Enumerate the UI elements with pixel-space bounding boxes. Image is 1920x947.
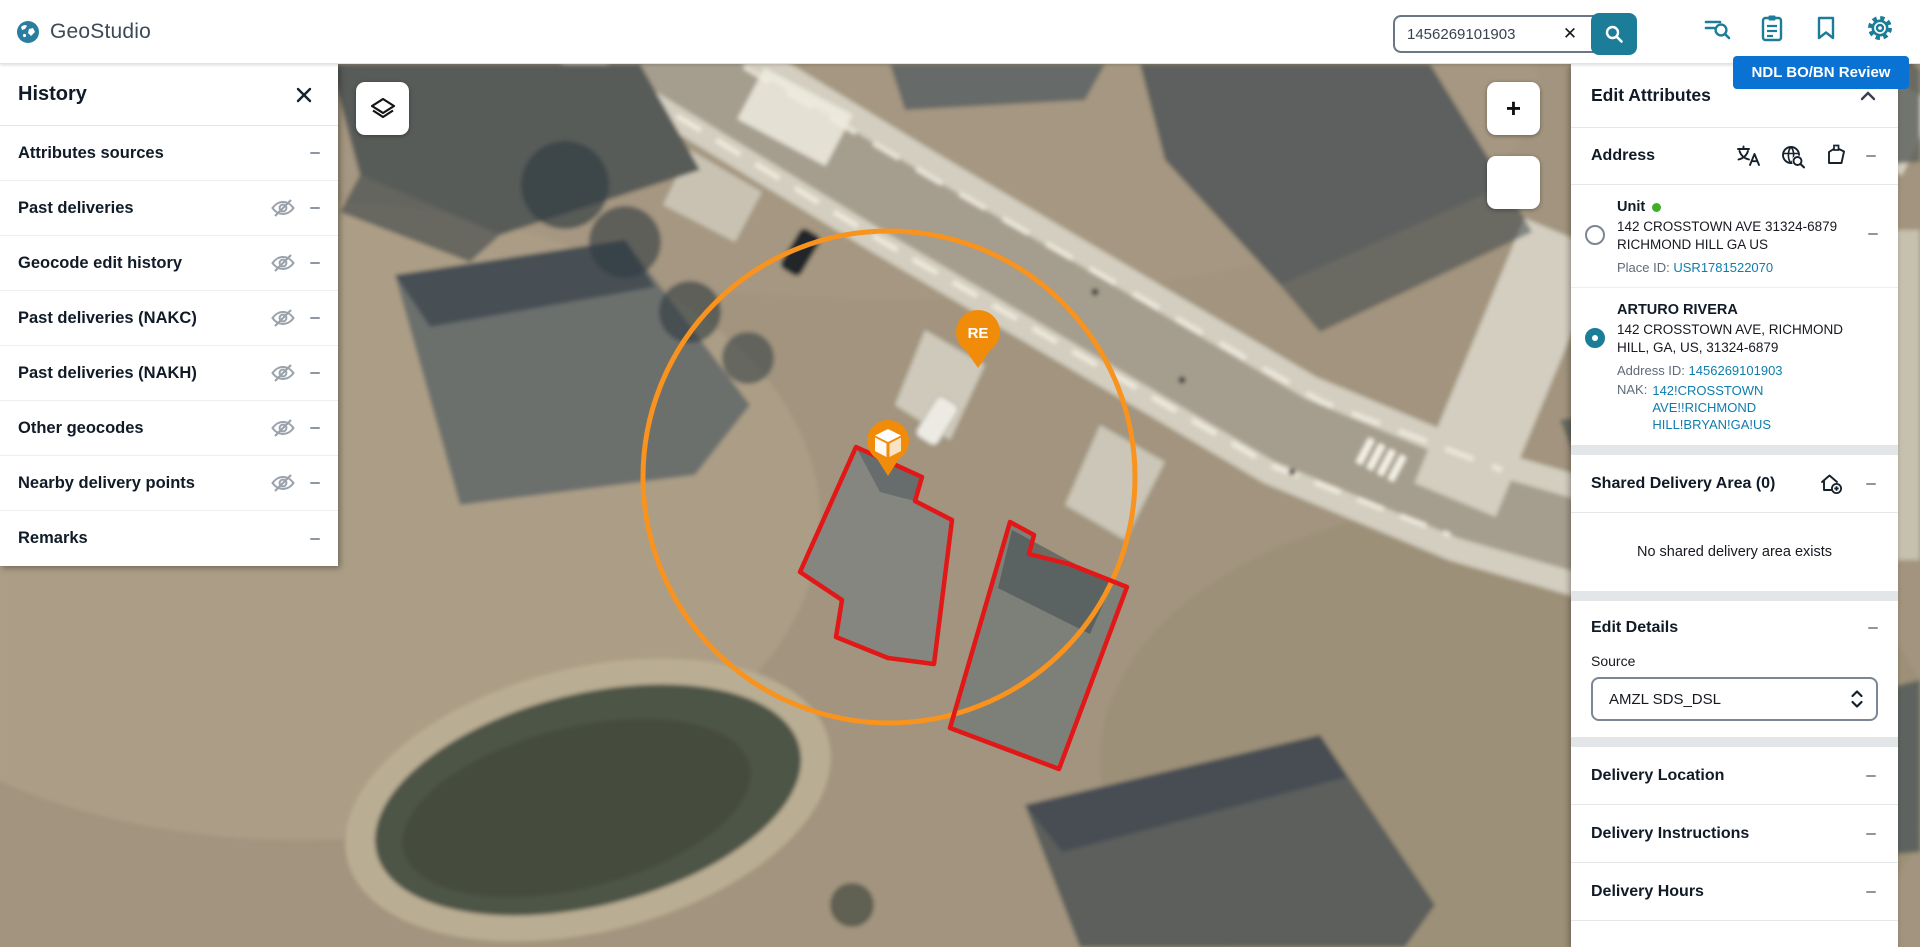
map-layers-button[interactable] bbox=[356, 82, 409, 135]
search-clear-button[interactable]: ✕ bbox=[1557, 21, 1583, 47]
tasks-button[interactable] bbox=[1754, 8, 1790, 48]
clipboard-icon bbox=[1760, 14, 1784, 42]
history-item-remarks[interactable]: Remarks bbox=[0, 511, 338, 566]
history-panel: History Attributes sources Past deliveri… bbox=[0, 64, 338, 566]
history-item-past-deliveries[interactable]: Past deliveries bbox=[0, 181, 338, 236]
header-search: ✕ bbox=[1393, 13, 1637, 55]
shared-delivery-empty-message: No shared delivery area exists bbox=[1571, 513, 1898, 591]
visibility-off-icon[interactable] bbox=[270, 196, 296, 220]
visibility-off-icon[interactable] bbox=[270, 471, 296, 495]
address-id-link[interactable]: 1456269101903 bbox=[1689, 363, 1783, 378]
parcel-boundary-icon[interactable] bbox=[1824, 144, 1848, 168]
edit-attributes-title: Edit Attributes bbox=[1591, 85, 1711, 106]
history-panel-title: History bbox=[18, 83, 87, 106]
visibility-off-icon[interactable] bbox=[270, 416, 296, 440]
address-section-title: Address bbox=[1591, 147, 1655, 165]
section-delivery-location[interactable]: Delivery Location bbox=[1571, 747, 1898, 805]
history-item-past-deliveries-nakh[interactable]: Past deliveries (NAKH) bbox=[0, 346, 338, 401]
section-delivery-hours[interactable]: Delivery Hours bbox=[1571, 863, 1898, 921]
unit-address-line2: RICHMOND HILL GA US bbox=[1617, 236, 1859, 254]
source-label: Source bbox=[1591, 653, 1878, 669]
status-dot-green bbox=[1652, 203, 1661, 212]
panel-scrollbar-track[interactable] bbox=[1571, 445, 1898, 455]
expand-toggle[interactable] bbox=[1866, 483, 1876, 485]
nak-label: NAK: bbox=[1617, 382, 1647, 433]
unit-address-line1: 142 CROSSTOWN AVE 31324-6879 bbox=[1617, 218, 1859, 236]
expand-toggle[interactable] bbox=[1866, 833, 1876, 835]
add-home-icon[interactable] bbox=[1818, 472, 1844, 496]
visibility-off-icon[interactable] bbox=[270, 306, 296, 330]
history-item-nearby-delivery-points[interactable]: Nearby delivery points bbox=[0, 456, 338, 511]
expand-toggle[interactable] bbox=[1868, 627, 1878, 629]
primary-name: ARTURO RIVERA bbox=[1617, 302, 1738, 318]
map-search-icon[interactable] bbox=[1780, 144, 1806, 169]
settings-button[interactable] bbox=[1862, 8, 1898, 48]
chevron-up-icon[interactable] bbox=[1860, 91, 1876, 101]
expand-toggle[interactable] bbox=[1866, 891, 1876, 893]
globe-logo-icon bbox=[16, 20, 40, 44]
history-item-past-deliveries-nakc[interactable]: Past deliveries (NAKC) bbox=[0, 291, 338, 346]
expand-toggle[interactable] bbox=[310, 152, 320, 154]
search-list-icon bbox=[1704, 15, 1732, 41]
section-delivery-instructions[interactable]: Delivery Instructions bbox=[1571, 805, 1898, 863]
zoom-in-button[interactable]: + bbox=[1487, 82, 1540, 135]
expand-toggle[interactable] bbox=[1866, 155, 1876, 157]
unit-radio[interactable] bbox=[1585, 225, 1605, 245]
bulk-search-button[interactable] bbox=[1700, 8, 1736, 48]
gear-icon bbox=[1865, 13, 1895, 43]
expand-toggle[interactable] bbox=[310, 538, 320, 540]
expand-toggle[interactable] bbox=[1868, 233, 1878, 235]
edit-attributes-panel: Edit Attributes Address bbox=[1571, 64, 1898, 947]
edit-details-title: Edit Details bbox=[1591, 619, 1678, 637]
search-icon bbox=[1604, 24, 1624, 44]
layers-icon bbox=[370, 97, 396, 121]
expand-toggle[interactable] bbox=[310, 207, 320, 209]
place-id-label: Place ID: bbox=[1617, 260, 1670, 275]
expand-toggle[interactable] bbox=[310, 372, 320, 374]
visibility-off-icon[interactable] bbox=[270, 361, 296, 385]
primary-address: 142 CROSSTOWN AVE, RICHMOND HILL, GA, US… bbox=[1617, 321, 1859, 357]
app-title: GeoStudio bbox=[50, 20, 151, 44]
source-selected-value: AMZL SDS_DSL bbox=[1609, 691, 1721, 708]
history-item-attributes-sources[interactable]: Attributes sources bbox=[0, 126, 338, 181]
expand-toggle[interactable] bbox=[1866, 775, 1876, 777]
expand-toggle[interactable] bbox=[310, 427, 320, 429]
bookmark-icon bbox=[1815, 15, 1837, 41]
app-header: GeoStudio ✕ bbox=[0, 0, 1920, 64]
address-candidate-unit[interactable]: Unit 142 CROSSTOWN AVE 31324-6879 RICHMO… bbox=[1571, 185, 1898, 287]
close-icon bbox=[296, 87, 312, 103]
shared-delivery-area-title: Shared Delivery Area (0) bbox=[1591, 475, 1775, 493]
history-item-geocode-edit-history[interactable]: Geocode edit history bbox=[0, 236, 338, 291]
search-button[interactable] bbox=[1591, 13, 1637, 55]
visibility-off-icon[interactable] bbox=[270, 251, 296, 275]
zoom-out-button[interactable] bbox=[1487, 156, 1540, 209]
expand-toggle[interactable] bbox=[310, 482, 320, 484]
translate-icon[interactable] bbox=[1736, 144, 1762, 168]
history-close-button[interactable] bbox=[292, 83, 316, 107]
place-id-link[interactable]: USR1781522070 bbox=[1673, 260, 1773, 275]
source-select[interactable]: AMZL SDS_DSL bbox=[1591, 677, 1878, 721]
bookmark-button[interactable] bbox=[1808, 8, 1844, 48]
expand-toggle[interactable] bbox=[310, 317, 320, 319]
address-id-label: Address ID: bbox=[1617, 363, 1685, 378]
select-chevrons-icon bbox=[1850, 689, 1864, 709]
re-pin-label: RE bbox=[968, 325, 989, 342]
expand-toggle[interactable] bbox=[310, 262, 320, 264]
search-input[interactable] bbox=[1407, 26, 1557, 43]
history-item-other-geocodes[interactable]: Other geocodes bbox=[0, 401, 338, 456]
app-logo: GeoStudio bbox=[16, 20, 151, 44]
address-candidate-primary[interactable]: ARTURO RIVERA 142 CROSSTOWN AVE, RICHMON… bbox=[1571, 288, 1898, 445]
unit-name: Unit bbox=[1617, 199, 1645, 215]
primary-radio[interactable] bbox=[1585, 328, 1605, 348]
review-status-badge: NDL BO/BN Review bbox=[1733, 56, 1909, 89]
nak-link[interactable]: 142!CROSSTOWN AVE!!RICHMOND HILL!BRYAN!G… bbox=[1652, 382, 1864, 433]
